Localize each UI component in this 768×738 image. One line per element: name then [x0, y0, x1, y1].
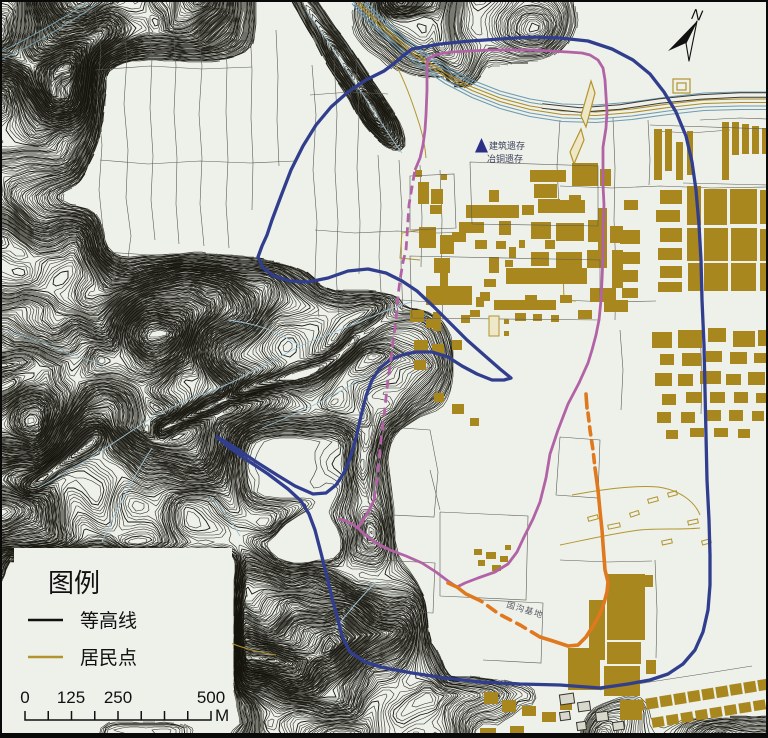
svg-text:0: 0 [20, 688, 29, 707]
svg-text:500: 500 [197, 688, 225, 707]
svg-text:建筑遗存: 建筑遗存 [489, 140, 525, 151]
svg-text:250: 250 [104, 688, 132, 707]
svg-text:125: 125 [57, 688, 85, 707]
svg-text:冶铜遗存: 冶铜遗存 [487, 153, 523, 164]
svg-text:居民点: 居民点 [80, 647, 137, 669]
svg-text:图例: 图例 [48, 568, 100, 598]
svg-text:等高线: 等高线 [80, 610, 137, 632]
svg-text:M: M [215, 706, 229, 725]
